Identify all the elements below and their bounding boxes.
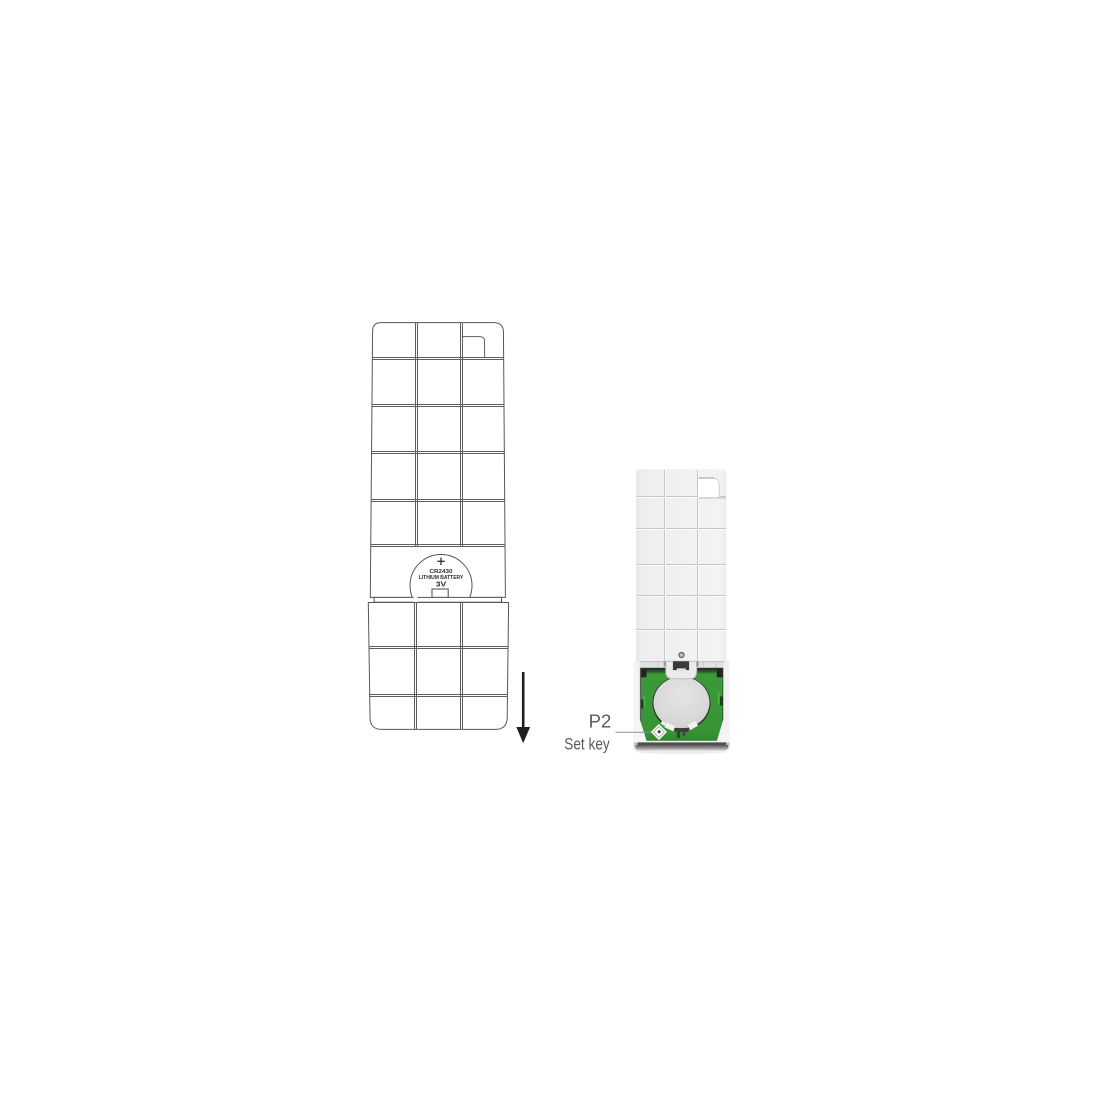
svg-text:P2: P2: [589, 711, 612, 732]
svg-text:3V: 3V: [436, 580, 448, 589]
svg-text:Set key: Set key: [564, 735, 610, 753]
